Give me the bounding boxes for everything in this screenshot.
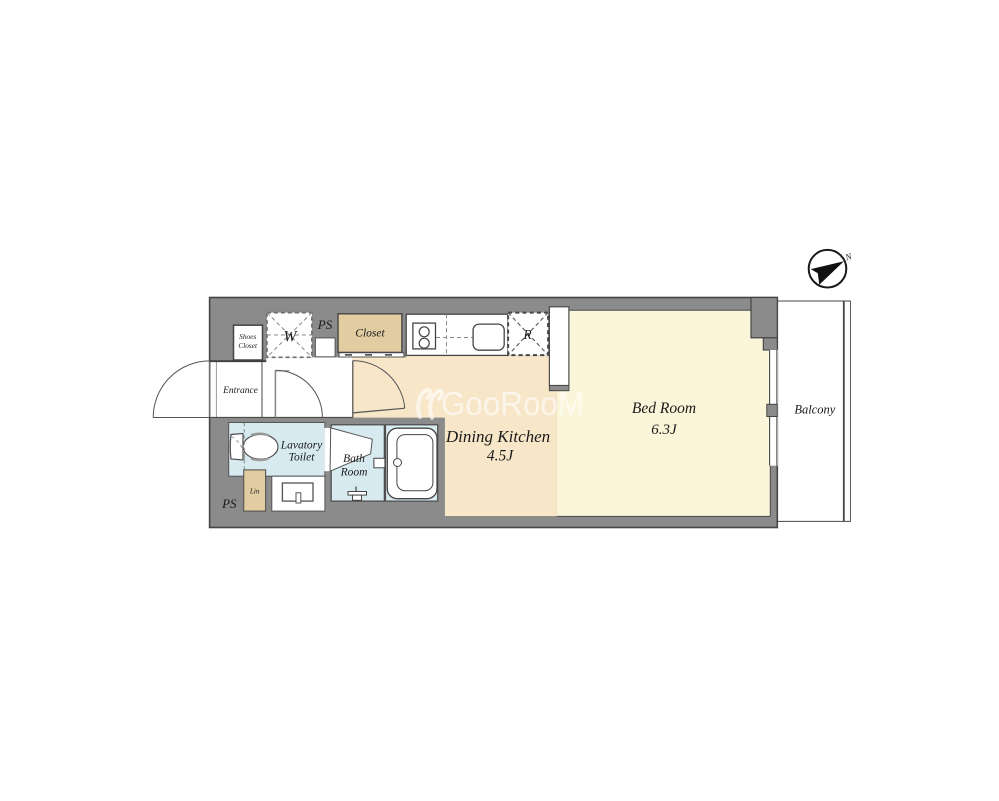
- svg-text:Toilet: Toilet: [289, 452, 316, 464]
- svg-text:GooRooM: GooRooM: [441, 385, 584, 422]
- svg-text:Shoes: Shoes: [239, 332, 256, 341]
- svg-text:Lin: Lin: [249, 488, 260, 496]
- svg-text:Lavatory: Lavatory: [280, 440, 323, 452]
- svg-text:Bed Room: Bed Room: [632, 400, 696, 417]
- svg-text:Balcony: Balcony: [794, 403, 835, 417]
- svg-text:R: R: [522, 327, 532, 342]
- svg-text:PS: PS: [317, 317, 333, 332]
- svg-text:Closet: Closet: [355, 328, 385, 340]
- svg-text:Dining Kitchen: Dining Kitchen: [445, 427, 550, 446]
- svg-text:4.5J: 4.5J: [487, 448, 514, 465]
- svg-text:Bath: Bath: [343, 453, 365, 465]
- svg-text:Closet: Closet: [238, 341, 258, 350]
- svg-text:PS: PS: [221, 496, 237, 511]
- svg-text:W: W: [284, 329, 299, 346]
- svg-text:6.3J: 6.3J: [651, 422, 678, 438]
- svg-text:Room: Room: [340, 467, 368, 479]
- svg-text:Entrance: Entrance: [222, 386, 258, 396]
